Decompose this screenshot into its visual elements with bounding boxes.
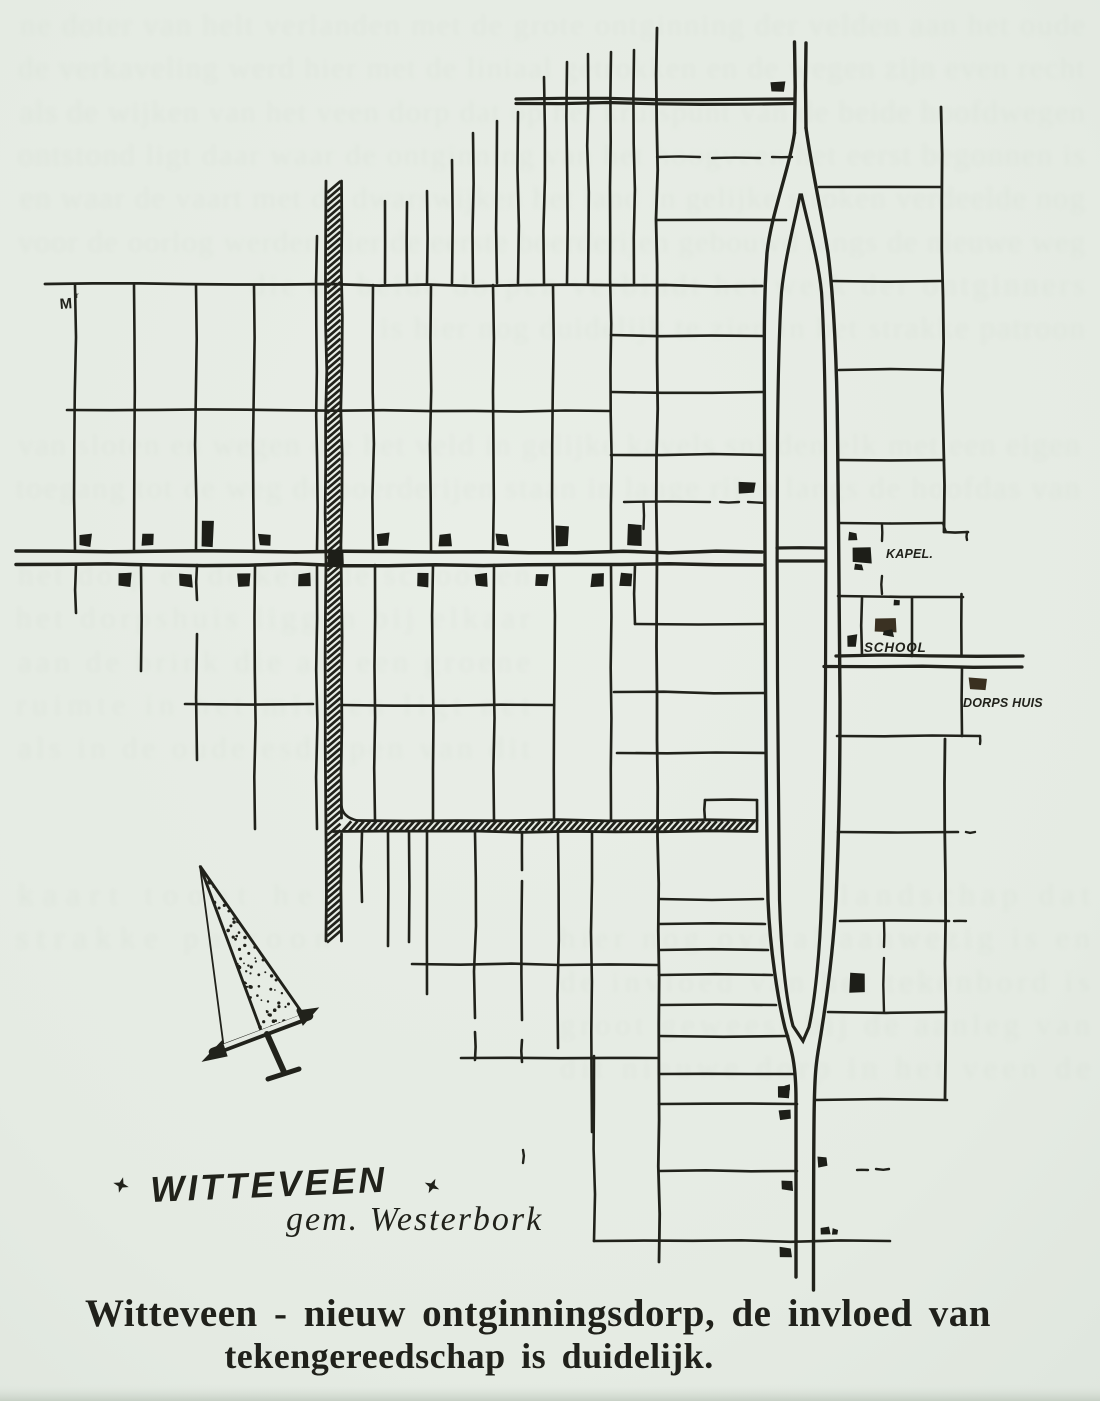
svg-text:gem. Westerbork: gem. Westerbork — [286, 1201, 543, 1238]
svg-text:voor de oorlog werden hier de: voor de oorlog werden hier de eerste boe… — [18, 224, 1085, 259]
svg-text:toegang tot de weg de boerderi: toegang tot de weg de boerderijen staan … — [16, 470, 1081, 505]
svg-text:ontstond ligt daar waar de ont: ontstond ligt daar waar de ontginning va… — [18, 137, 1085, 172]
svg-text:Witteveen - nieuw ontginningsd: Witteveen - nieuw ontginningsdorp, de in… — [85, 1292, 991, 1335]
svg-text:SCHOOL: SCHOOL — [864, 640, 927, 655]
svg-text:DORPS HUIS: DORPS HUIS — [963, 696, 1043, 710]
svg-text:van sloten en wegen die het ve: van sloten en wegen die het veld in geli… — [18, 427, 1081, 462]
svg-text:M: M — [59, 295, 73, 313]
svg-text:is hier nog duidelijk te zien: is hier nog duidelijk te zien in het str… — [380, 310, 1086, 345]
svg-text:de verkaveling werd hier met d: de verkaveling werd hier met de liniaal … — [18, 50, 1085, 85]
svg-text:en waar de vaart met de dwarsw: en waar de vaart met de dwarswijken het … — [20, 180, 1085, 215]
svg-text:aan de brink die als een groen: aan de brink die als een groene — [18, 644, 530, 679]
svg-text:r: r — [76, 291, 79, 300]
svg-text:het dorpshuis liggen bij elkaa: het dorpshuis liggen bij elkaar — [16, 600, 531, 635]
svg-text:tekengereedschap is duidelijk.: tekengereedschap is duidelijk. — [224, 1336, 713, 1376]
svg-text:landschap dat: landschap dat — [840, 877, 1090, 912]
svg-text:KAPEL.: KAPEL. — [886, 547, 933, 561]
svg-text:ne doter van helt verlanden me: ne doter van helt verlanden met de grote… — [20, 7, 1085, 42]
svg-text:de invloed van het tekenbord i: de invloed van het tekenbord is — [560, 964, 1090, 999]
